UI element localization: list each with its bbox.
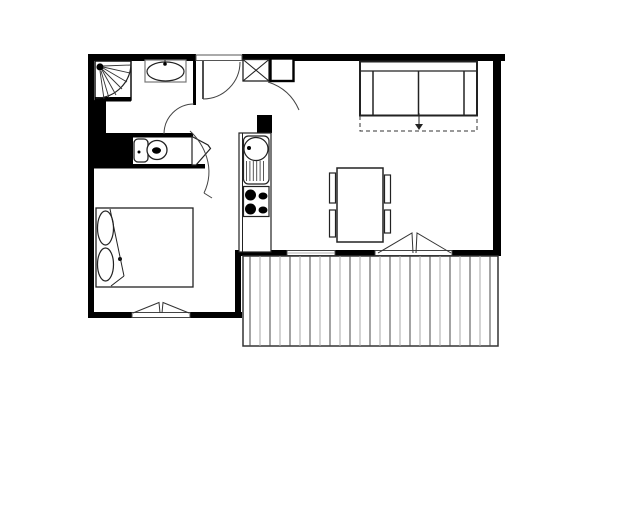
floor-plan-svg (0, 0, 640, 524)
sofabed-arrow-head (415, 124, 423, 130)
entry-door-swing-arc (203, 62, 240, 99)
wall-left (88, 54, 94, 318)
dining-chair-1 (330, 173, 336, 203)
bedroom-window-opening (132, 313, 190, 318)
stove-burner-4 (259, 207, 268, 214)
toilet-cistern-dot (138, 151, 141, 154)
stove-burner-1 (245, 190, 256, 201)
bedroom-window-casement-right (162, 303, 189, 314)
wall-mass-below-shower (93, 100, 106, 136)
floor-plan-page (0, 0, 640, 524)
wall-bedroom-right (235, 250, 241, 318)
bed-fold-dot (118, 257, 122, 261)
stove-burner-3 (259, 193, 268, 200)
bath-sink-tap-dot (163, 62, 167, 66)
hall-door-arc-tick (204, 193, 212, 198)
wall-balcony-3 (452, 250, 498, 256)
bedroom-window-casement-left (133, 303, 160, 314)
bathroom-door-swing-arc (164, 104, 194, 134)
wall-bedroom-top (88, 164, 205, 169)
stove-burner-2 (245, 204, 256, 215)
balcony-door-opening (375, 251, 452, 256)
wall-bedroom-bottom-left (88, 312, 132, 318)
entry-door-opening (196, 55, 242, 61)
wall-bedroom-bottom-right (190, 312, 242, 318)
dining-chair-2 (330, 210, 336, 237)
toilet-bowl-hole (152, 147, 161, 153)
wall-kitchen-stub (257, 115, 272, 133)
bed-outline (96, 208, 193, 287)
kitchen-sink-tap-dot (247, 146, 251, 150)
toilet-cistern (134, 139, 148, 162)
closet-door-swing-arc (268, 82, 299, 110)
wall-wc-niche-top (130, 133, 193, 138)
wall-bathroom-right (193, 54, 196, 105)
entry-duct-box (271, 59, 294, 82)
wall-mass-wc (93, 133, 133, 166)
wall-right (493, 54, 501, 256)
dining-chair-3 (385, 175, 391, 203)
dining-chair-4 (385, 210, 391, 233)
wall-balcony-2 (335, 250, 375, 256)
dining-table (337, 168, 383, 242)
